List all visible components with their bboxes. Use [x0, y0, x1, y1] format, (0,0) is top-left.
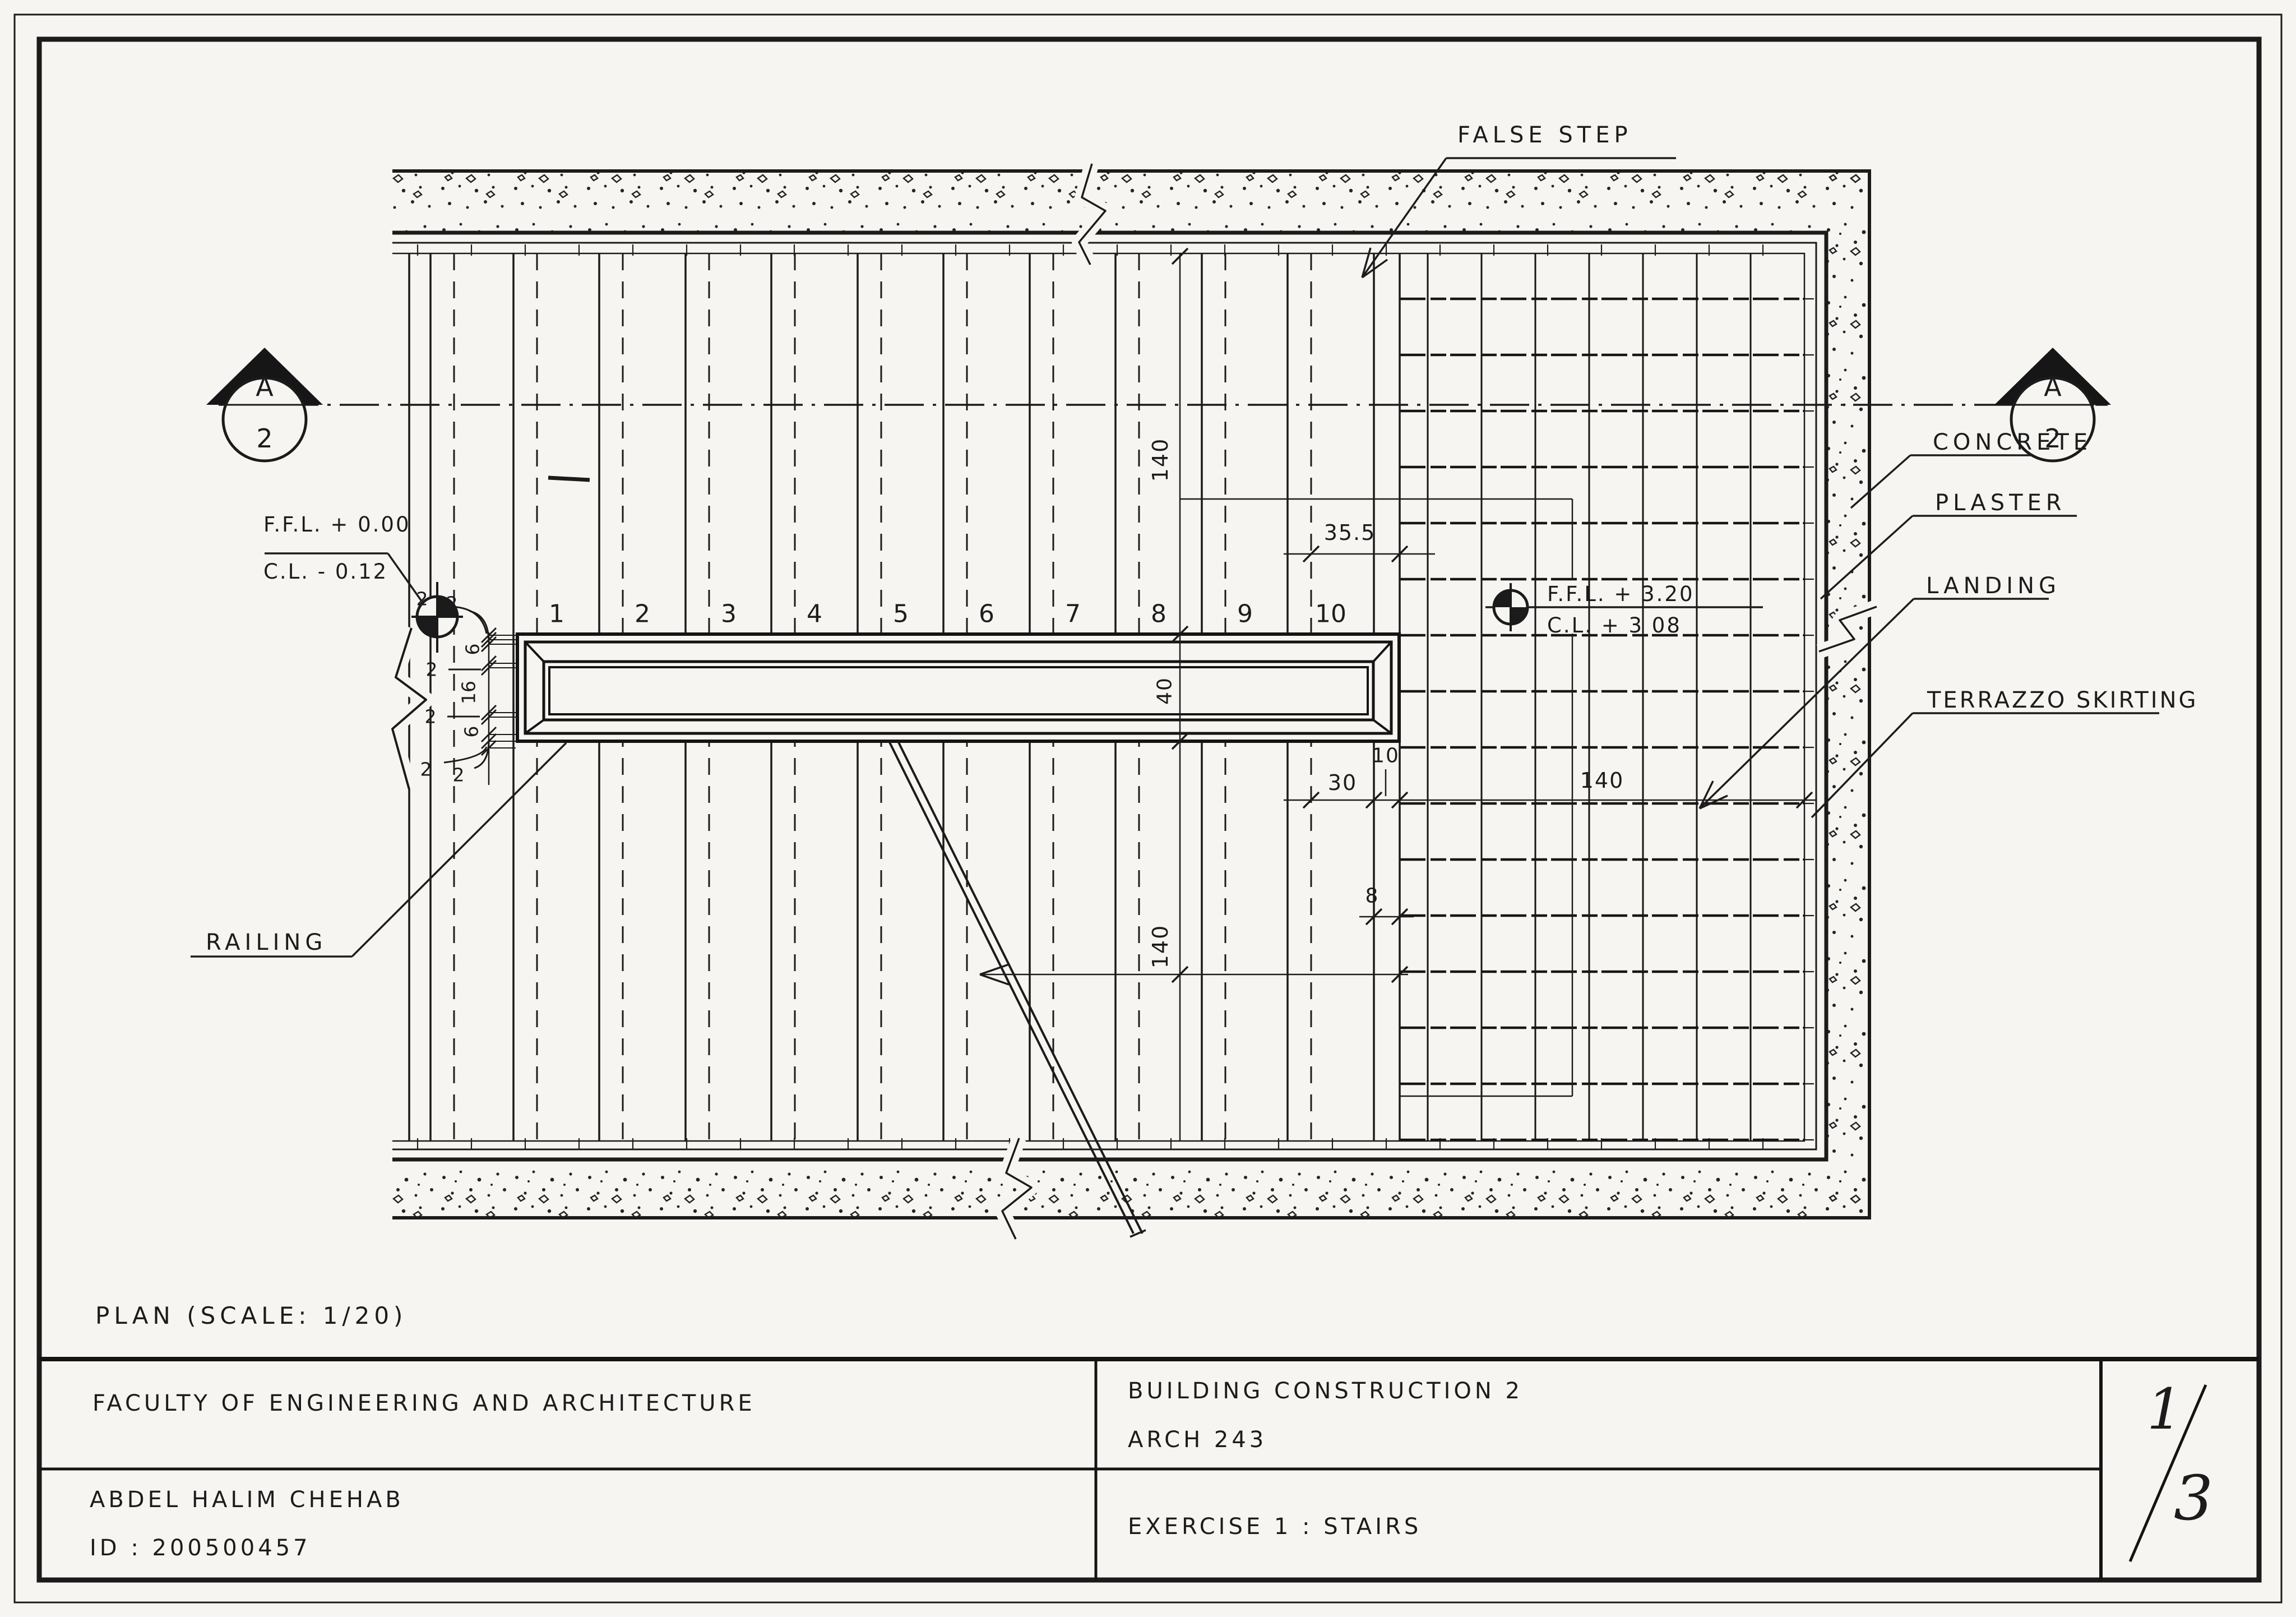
step-number-6: 6 [979, 600, 994, 629]
step-number-1: 1 [549, 600, 564, 629]
dim-landing-strip: 10 [1372, 745, 1400, 768]
title-block-course-code: ARCH 243 [1128, 1427, 1267, 1453]
label-concrete: CONCRETE [1933, 429, 2092, 455]
plan-title: PLAN (SCALE: 1/20) [95, 1302, 407, 1329]
chain-dim-1: 2 [446, 593, 458, 615]
sheet-total: 3 [2174, 1462, 2213, 1534]
label-landing: LANDING [1926, 573, 2061, 599]
scan-mark [548, 478, 590, 480]
section-sheet-left: 2 [256, 423, 272, 454]
level-cl-ground: C.L. - 0.12 [263, 560, 388, 584]
level-ffl-upper: F.F.L. + 3.20 [1547, 582, 1694, 606]
dim-skirting: 8 [1365, 885, 1380, 908]
landing-tile-grid [1400, 253, 1804, 1141]
level-ffl-ground: F.F.L. + 0.00 [263, 512, 410, 537]
title-block-exercise: EXERCISE 1 : STAIRS [1128, 1514, 1422, 1540]
chain-dim-4: 16 [458, 681, 480, 704]
level-cl-upper: C.L. + 3 08 [1547, 613, 1682, 637]
railing-chain-ticks [482, 628, 516, 755]
label-railing: RAILING [206, 930, 327, 955]
chain-dim-8: 2 [453, 764, 465, 786]
chain-dim-5: 2 [425, 706, 437, 728]
label-false-step: FALSE STEP [1457, 122, 1632, 148]
section-letter-left: A [256, 372, 273, 402]
label-plaster: PLASTER [1935, 490, 2066, 516]
dimension-ticks [1172, 248, 1812, 982]
dim-landing-width: 140 [1580, 768, 1624, 793]
dim-flight-upper: 140 [1148, 438, 1173, 482]
plan-linework [0, 0, 2296, 1617]
railing-frame [517, 634, 1399, 741]
step-number-4: 4 [807, 600, 822, 629]
chain-dim-0: 2 [416, 588, 428, 610]
chain-dim-7: 2 [420, 759, 432, 780]
dim-false-step: 35.5 [1324, 520, 1376, 545]
step-number-8: 8 [1151, 600, 1166, 629]
sheet-number: 1 [2147, 1376, 2183, 1442]
title-block-faculty: FACULTY OF ENGINEERING AND ARCHITECTURE [92, 1390, 756, 1416]
title-block-student-id: ID : 200500457 [90, 1535, 311, 1561]
chain-dim-6: 6 [461, 726, 483, 738]
dim-well-width: 40 [1154, 677, 1177, 705]
step-number-10: 10 [1315, 600, 1346, 629]
step-number-9: 9 [1237, 600, 1253, 629]
label-terrazzo-skirting: TERRAZZO SKIRTING [1927, 687, 2198, 713]
step-number-3: 3 [721, 600, 737, 629]
title-block-course-title: BUILDING CONSTRUCTION 2 [1128, 1378, 1523, 1404]
step-number-5: 5 [893, 600, 909, 629]
section-letter-right: A [2044, 372, 2061, 402]
dim-going: 30 [1328, 770, 1357, 795]
title-block-author: ABDEL HALIM CHEHAB [90, 1487, 404, 1513]
dim-flight-lower: 140 [1148, 925, 1173, 969]
level-symbol-upper [1494, 583, 1527, 631]
step-number-7: 7 [1065, 600, 1081, 629]
chain-dim-3: 2 [426, 659, 438, 681]
drawing-sheet: PLAN (SCALE: 1/20) FACULTY OF ENGINEERIN… [0, 0, 2296, 1617]
chain-dim-2: 6 [462, 644, 484, 655]
section-sheet-right: 2 [2044, 423, 2061, 454]
step-number-2: 2 [635, 600, 650, 629]
